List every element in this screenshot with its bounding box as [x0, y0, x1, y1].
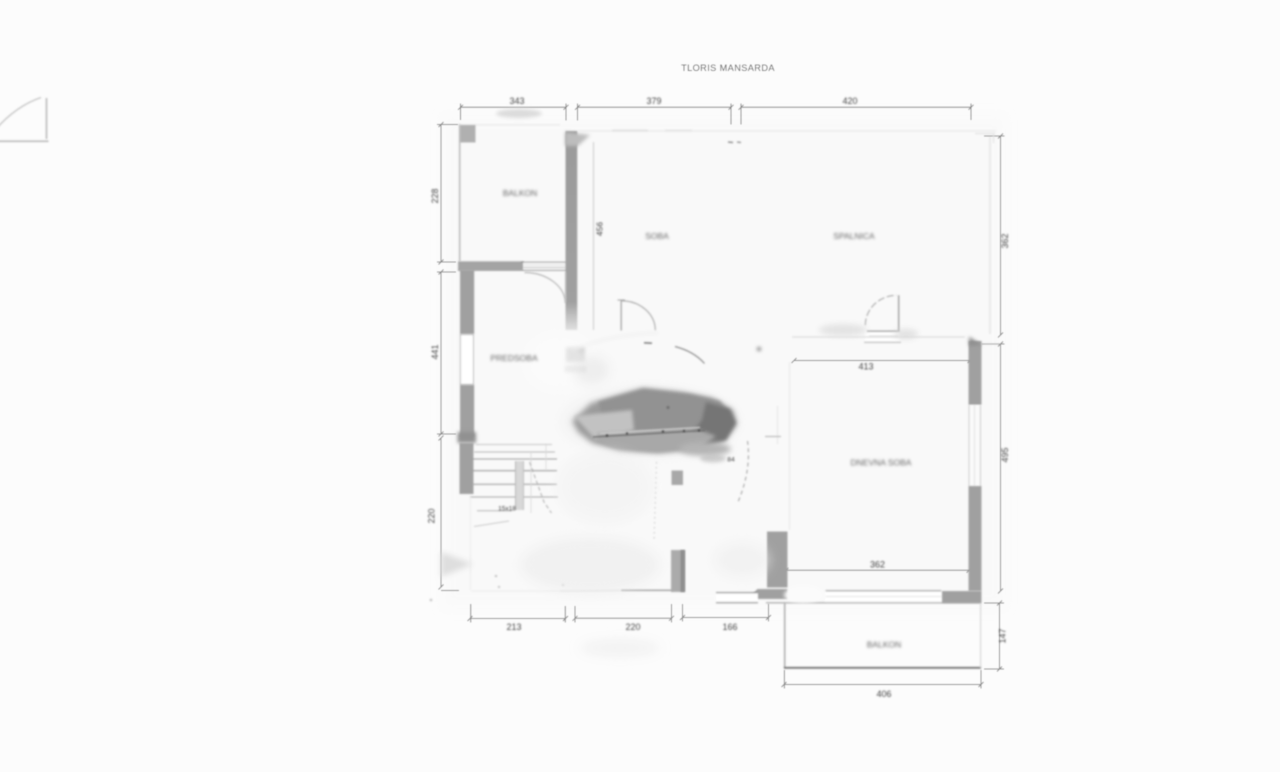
svg-text:147: 147 — [998, 628, 1008, 643]
svg-text:220: 220 — [625, 622, 640, 632]
svg-text:BALKON: BALKON — [503, 188, 538, 198]
svg-text:84: 84 — [727, 457, 735, 464]
svg-text:413: 413 — [858, 362, 873, 372]
svg-text:PREDSOBA: PREDSOBA — [490, 353, 538, 363]
svg-text:456: 456 — [595, 222, 605, 236]
svg-text:420: 420 — [842, 96, 857, 106]
svg-text:DNEVNA SOBA: DNEVNA SOBA — [851, 458, 912, 468]
svg-text:379: 379 — [646, 96, 661, 106]
svg-text:213: 213 — [506, 622, 521, 632]
svg-text:BALKON: BALKON — [867, 640, 902, 650]
svg-text:166: 166 — [722, 622, 737, 632]
svg-text:TLORIS MANSARDA: TLORIS MANSARDA — [681, 63, 775, 73]
svg-text:495: 495 — [1000, 447, 1010, 462]
svg-text:362: 362 — [870, 560, 885, 570]
svg-text:343: 343 — [509, 96, 524, 106]
svg-text:SOBA: SOBA — [645, 231, 669, 241]
svg-text:220: 220 — [427, 508, 437, 523]
svg-text:441: 441 — [430, 344, 440, 359]
svg-text:228: 228 — [430, 188, 440, 203]
svg-text:15x18: 15x18 — [498, 506, 516, 513]
svg-text:362: 362 — [1000, 233, 1010, 248]
svg-text:SPALNICA: SPALNICA — [833, 231, 875, 241]
svg-text:406: 406 — [876, 689, 891, 699]
